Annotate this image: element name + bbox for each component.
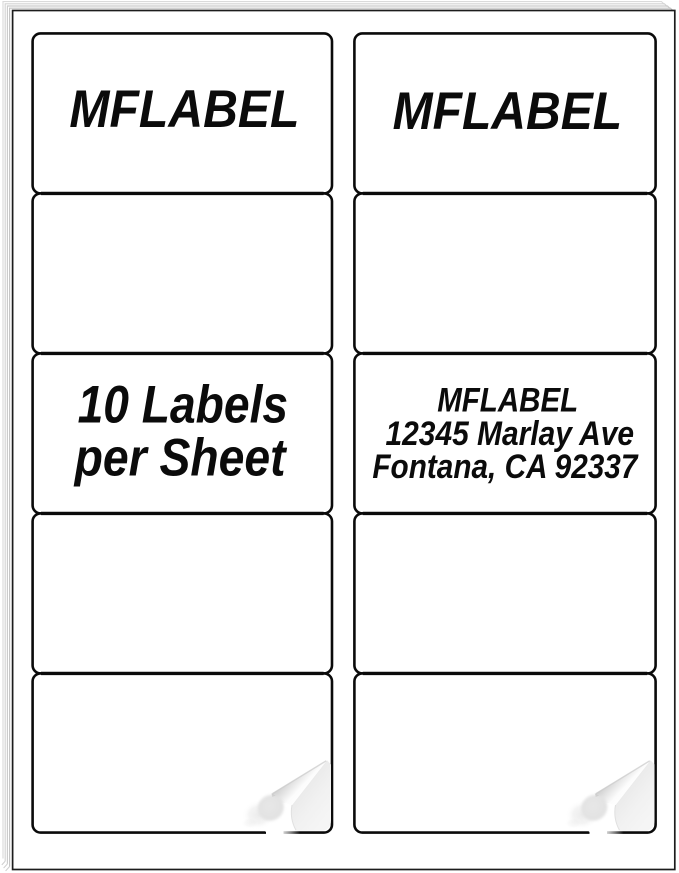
svg-text:MFLABEL: MFLABEL	[437, 381, 578, 419]
svg-text:MFLABEL: MFLABEL	[69, 80, 299, 139]
svg-text:Fontana, CA 92337: Fontana, CA 92337	[372, 448, 639, 486]
svg-text:per Sheet: per Sheet	[73, 429, 288, 488]
svg-text:10 Labels: 10 Labels	[78, 375, 289, 434]
svg-text:MFLABEL: MFLABEL	[393, 82, 622, 141]
